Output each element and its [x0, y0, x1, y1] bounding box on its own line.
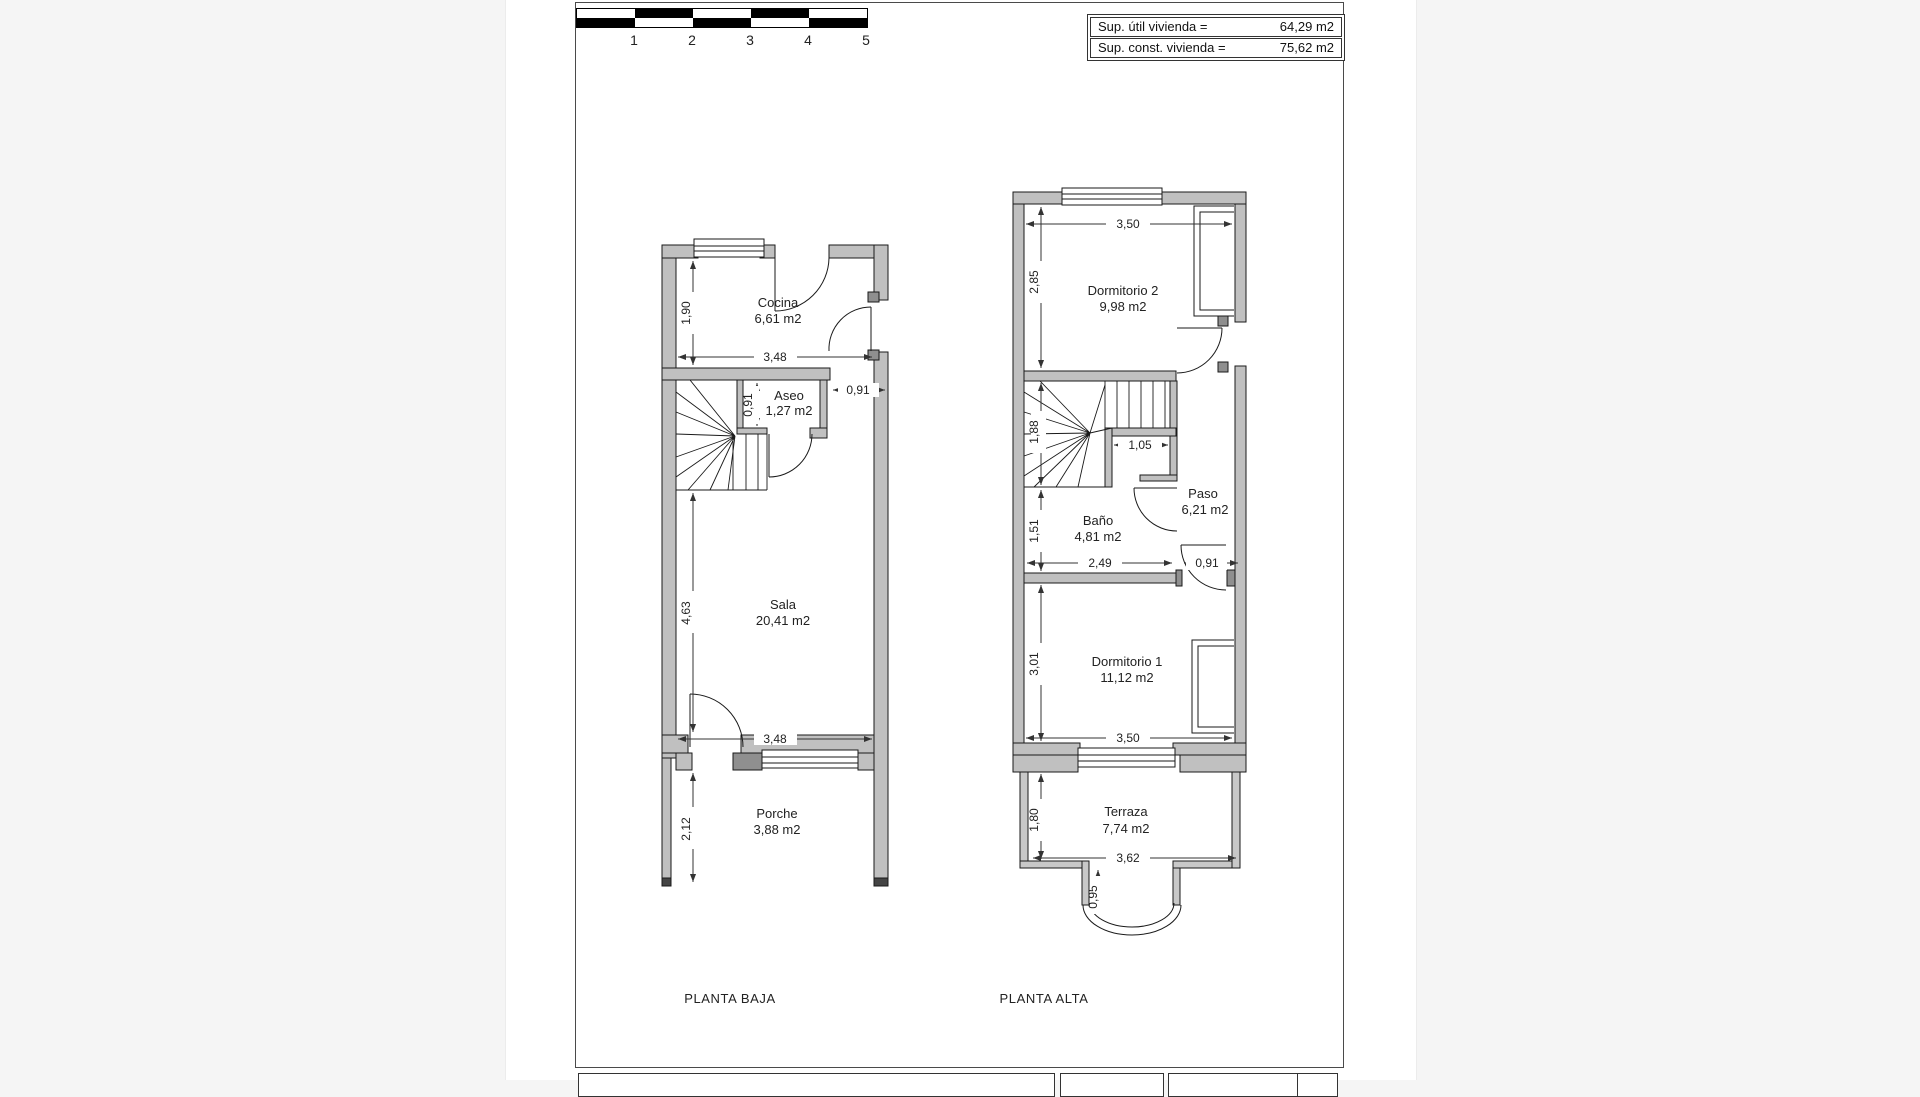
planta-alta-walls [1013, 192, 1246, 772]
title-block-divider [1297, 1074, 1298, 1096]
graphic-scale-bar: 1 2 3 4 5 [576, 8, 866, 58]
terraza-area-label: 7,74 m2 [1103, 821, 1150, 836]
dim-paso-door-width: 0,91 [1195, 556, 1219, 570]
dormitorio2-name-label: Dormitorio 2 [1088, 283, 1159, 298]
dim-dorm2-height: 2,85 [1027, 270, 1041, 294]
dim-bano-width: 2,49 [1088, 556, 1112, 570]
dim-terraza-height: 1,80 [1027, 808, 1041, 832]
terraza-name-label: Terraza [1104, 804, 1148, 819]
dim-terraza-width: 3,62 [1116, 851, 1140, 865]
scale-bar-top-row [577, 9, 867, 18]
summary-const-label: Sup. const. vivienda = [1098, 39, 1226, 57]
scale-bar-bottom-row [577, 18, 867, 27]
planta-baja-walls [662, 245, 888, 884]
summary-row-const: Sup. const. vivienda = 75,62 m2 [1090, 38, 1342, 58]
planta-alta-title: PLANTA ALTA [1000, 991, 1089, 1006]
scale-label-2: 2 [680, 32, 704, 48]
bano-name-label: Baño [1083, 513, 1113, 528]
dim-bano-height: 1,51 [1027, 519, 1041, 543]
scale-label-4: 4 [796, 32, 820, 48]
aseo-name-label: Aseo [774, 388, 804, 403]
scale-label-3: 3 [738, 32, 762, 48]
cocina-name-label: Cocina [758, 295, 799, 310]
summary-row-util: Sup. útil vivienda = 64,29 m2 [1090, 17, 1342, 37]
planta-baja-jambs [662, 292, 888, 886]
dim-cocina-width: 3,48 [763, 350, 787, 364]
title-block-left-box [578, 1073, 1055, 1097]
porche-name-label: Porche [756, 806, 797, 821]
dim-stairs-height: 1,88 [1027, 420, 1041, 444]
planta-baja-title: PLANTA BAJA [684, 991, 776, 1006]
paso-name-label: Paso [1188, 486, 1218, 501]
dormitorio1-name-label: Dormitorio 1 [1092, 654, 1163, 669]
sala-name-label: Sala [770, 597, 797, 612]
scale-label-1: 1 [622, 32, 646, 48]
planta-baja-plan: Cocina 6,61 m2 1,90 3,48 0,91 Aseo 1,27 … [662, 239, 888, 1006]
dim-dorm2-width: 3,50 [1116, 217, 1140, 231]
dim-aseo-height: 0,91 [741, 393, 755, 417]
planta-alta-closets [1192, 206, 1234, 733]
dim-sala-width: 3,48 [763, 732, 787, 746]
summary-const-value: 75,62 m2 [1280, 39, 1334, 57]
dormitorio2-area-label: 9,98 m2 [1100, 299, 1147, 314]
title-block-middle-box [1060, 1073, 1164, 1097]
dim-kitchen-door-width: 0,91 [846, 383, 870, 397]
title-block-right-box [1168, 1073, 1338, 1097]
cocina-area-label: 6,61 m2 [755, 311, 802, 326]
dim-porche-height: 2,12 [679, 817, 693, 841]
dim-dorm1-height: 3,01 [1027, 652, 1041, 676]
planta-alta-doors [1134, 328, 1226, 590]
floor-plans-drawing: Cocina 6,61 m2 1,90 3,48 0,91 Aseo 1,27 … [575, 60, 1345, 1068]
dim-nook-width: 1,05 [1128, 438, 1152, 452]
planta-alta-plan: 3,50 2,85 Dormitorio 2 9,98 m2 1,88 1,05… [1000, 188, 1246, 1006]
dim-dorm1-width: 3,50 [1116, 731, 1140, 745]
dim-sala-height: 4,63 [679, 601, 693, 625]
dormitorio1-area-label: 11,12 m2 [1100, 670, 1153, 685]
summary-util-label: Sup. útil vivienda = [1098, 18, 1207, 36]
bano-area-label: 4,81 m2 [1075, 529, 1122, 544]
dim-cocina-height: 1,90 [679, 301, 693, 325]
sala-area-label: 20,41 m2 [756, 613, 810, 628]
surface-summary-box: Sup. útil vivienda = 64,29 m2 Sup. const… [1087, 14, 1345, 61]
planta-baja-doors [690, 258, 871, 747]
scale-label-5: 5 [854, 32, 878, 48]
paso-area-label: 6,21 m2 [1182, 502, 1229, 517]
dim-bay-depth: 0,95 [1086, 885, 1100, 909]
summary-util-value: 64,29 m2 [1280, 18, 1334, 36]
porche-area-label: 3,88 m2 [754, 822, 801, 837]
scale-bar-band [576, 8, 868, 28]
aseo-area-label: 1,27 m2 [766, 403, 813, 418]
